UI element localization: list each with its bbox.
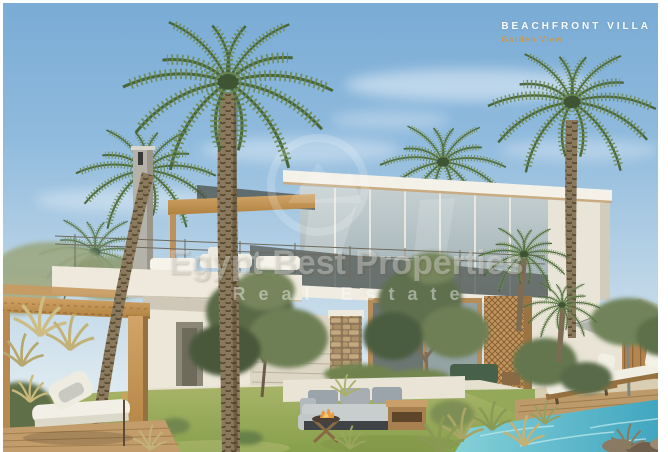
photo-subtitle: Garden View <box>501 35 651 44</box>
photo-title: BEACHFRONT VILLA <box>501 21 651 32</box>
photo-label: BEACHFRONT VILLA Garden View <box>501 21 651 44</box>
villa-photo: BEACHFRONT VILLA Garden View Egypt Best … <box>3 3 658 452</box>
screenshot-frame: BEACHFRONT VILLA Garden View Egypt Best … <box>0 0 668 452</box>
villa-rendering <box>3 3 658 452</box>
